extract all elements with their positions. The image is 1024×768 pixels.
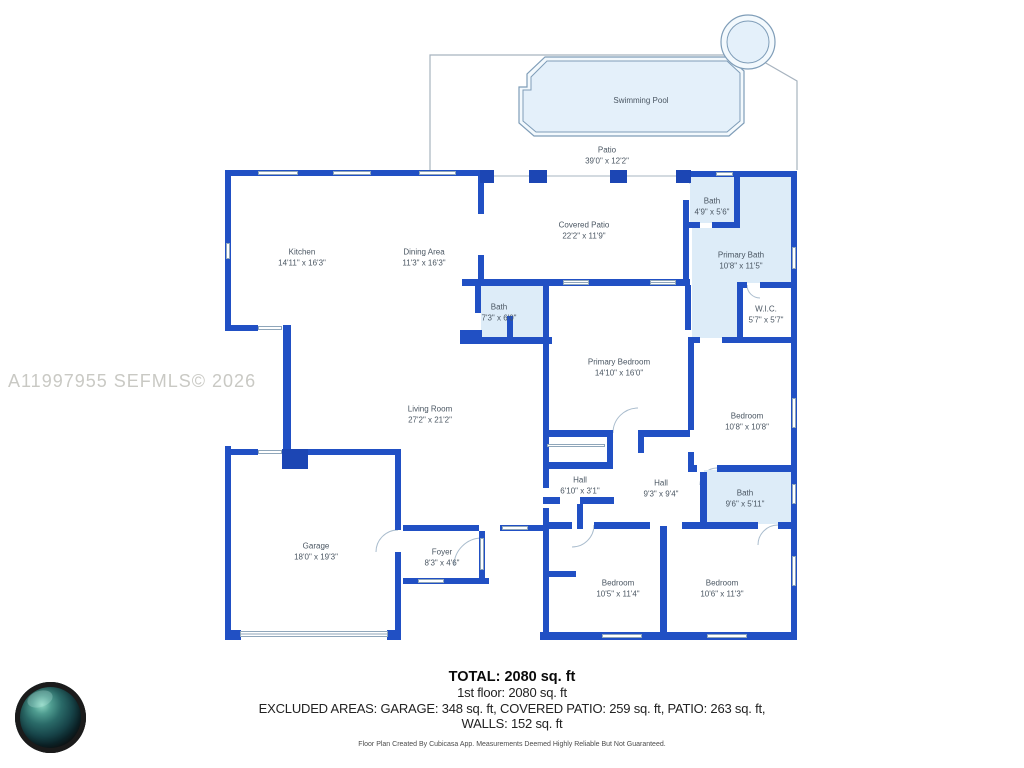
room-label-covered-patio: Covered Patio22'2" x 11'9" — [559, 221, 610, 242]
window — [792, 556, 796, 586]
wall-segment — [737, 282, 743, 343]
wall-segment — [700, 472, 707, 529]
room-dimensions: 7'3" x 6'0" — [482, 313, 517, 324]
room-label-wic: W.I.C.5'7" x 5'7" — [749, 305, 784, 326]
room-dimensions: 10'5" x 11'4" — [596, 589, 639, 600]
window — [547, 444, 605, 447]
window — [480, 538, 484, 570]
room-dimensions: 6'10" x 3'1" — [560, 486, 599, 497]
window — [792, 247, 796, 269]
wall-segment — [478, 255, 484, 285]
window — [258, 450, 282, 454]
window — [563, 280, 589, 285]
room-fill — [692, 228, 740, 338]
wall-segment — [395, 552, 401, 638]
room-label-hall-1: Hall6'10" x 3'1" — [560, 476, 599, 497]
room-name: Garage — [294, 542, 338, 553]
wall-block — [676, 170, 691, 183]
wall-segment — [543, 285, 549, 488]
room-name: Primary Bath — [718, 251, 764, 262]
room-label-bath-middle: Bath7'3" x 6'0" — [482, 303, 517, 324]
area-summary: TOTAL: 2080 sq. ft 1st floor: 2080 sq. f… — [0, 669, 1024, 748]
wall-segment — [717, 465, 797, 472]
room-label-hall-2: Hall9'3" x 9'4" — [644, 479, 679, 500]
wall-segment — [700, 522, 758, 529]
spa-water — [727, 21, 769, 63]
wall-segment — [760, 282, 797, 288]
room-dimensions: 22'2" x 11'9" — [559, 231, 610, 242]
wall-segment — [475, 285, 481, 313]
window — [418, 579, 444, 583]
room-name: Bedroom — [700, 579, 743, 590]
wall-segment — [688, 465, 697, 472]
room-label-swimming-pool: Swimming Pool — [613, 96, 668, 107]
window — [226, 243, 230, 259]
window — [716, 172, 733, 176]
wall-segment — [683, 200, 689, 285]
room-label-bath-top: Bath4'9" x 5'6" — [695, 197, 730, 218]
room-name: Primary Bedroom — [588, 358, 650, 369]
wall-segment — [734, 177, 740, 222]
excluded-walls-text: WALLS: 152 sq. ft — [0, 716, 1024, 732]
wall-segment — [225, 446, 231, 638]
room-name: Bath — [726, 489, 765, 500]
room-label-bedroom-bottom-left: Bedroom10'5" x 11'4" — [596, 579, 639, 600]
wall-segment — [685, 171, 795, 177]
room-label-living-room: Living Room27'2" x 21'2" — [408, 405, 452, 426]
total-area-text: TOTAL: 2080 sq. ft — [0, 669, 1024, 685]
wall-segment — [712, 222, 740, 228]
room-name: Bedroom — [596, 579, 639, 590]
room-name: W.I.C. — [749, 305, 784, 316]
room-dimensions: 14'11" x 16'3" — [278, 258, 326, 269]
room-label-bath-right: Bath9'6" x 5'11" — [726, 489, 765, 510]
window — [258, 171, 298, 175]
wall-segment — [543, 462, 613, 469]
mls-watermark: A11997955 SEFMLS© 2026 — [8, 371, 256, 392]
room-name: Kitchen — [278, 248, 326, 259]
wall-segment — [543, 430, 613, 437]
wall-segment — [548, 571, 576, 577]
room-name: Swimming Pool — [613, 96, 668, 107]
room-label-kitchen: Kitchen14'11" x 16'3" — [278, 248, 326, 269]
floorplan-page: Swimming PoolPatio39'0" x 12'2"Kitchen14… — [0, 0, 1024, 768]
wall-segment — [682, 522, 700, 529]
room-dimensions: 9'3" x 9'4" — [644, 489, 679, 500]
wall-segment — [607, 430, 613, 469]
room-name: Living Room — [408, 405, 452, 416]
room-dimensions: 11'3" x 16'3" — [402, 258, 445, 269]
wall-segment — [545, 522, 572, 529]
window — [258, 326, 282, 330]
room-dimensions: 18'0" x 19'3" — [294, 552, 338, 563]
wall-segment — [638, 430, 690, 437]
room-label-garage: Garage18'0" x 19'3" — [294, 542, 338, 563]
wall-segment — [403, 525, 479, 531]
wall-segment — [594, 522, 650, 529]
excluded-areas-text: EXCLUDED AREAS: GARAGE: 348 sq. ft, COVE… — [0, 701, 1024, 717]
wall-segment — [778, 522, 797, 529]
wall-segment — [688, 343, 694, 430]
wall-segment — [227, 449, 258, 455]
window — [792, 484, 796, 504]
room-dimensions: 9'6" x 5'11" — [726, 499, 765, 510]
wall-block — [529, 170, 547, 183]
room-name: Patio — [585, 146, 629, 157]
floor-area-text: 1st floor: 2080 sq. ft — [0, 685, 1024, 701]
wall-block — [610, 170, 627, 183]
room-dimensions: 5'7" x 5'7" — [749, 315, 784, 326]
room-label-foyer: Foyer8'3" x 4'6" — [425, 548, 460, 569]
brokerage-camera-logo — [15, 682, 86, 753]
wall-segment — [722, 337, 797, 343]
room-name: Hall — [644, 479, 679, 490]
disclaimer-text: Floor Plan Created By Cubicasa App. Meas… — [0, 741, 1024, 748]
wall-segment — [387, 630, 401, 640]
wall-segment — [225, 630, 241, 640]
window — [333, 171, 371, 175]
wall-segment — [543, 497, 560, 504]
wall-segment — [403, 578, 489, 584]
window — [707, 634, 747, 638]
room-name: Bath — [695, 197, 730, 208]
window — [650, 280, 676, 285]
wall-segment — [395, 449, 401, 530]
wall-segment — [540, 632, 797, 640]
room-dimensions: 10'8" x 11'5" — [718, 261, 764, 272]
wall-segment — [685, 285, 691, 330]
room-name: Bath — [482, 303, 517, 314]
room-name: Hall — [560, 476, 599, 487]
room-dimensions: 27'2" x 21'2" — [408, 415, 452, 426]
room-label-primary-bedroom: Primary Bedroom14'10" x 16'0" — [588, 358, 650, 379]
window — [792, 398, 796, 428]
room-dimensions: 4'9" x 5'6" — [695, 207, 730, 218]
room-dimensions: 10'8" x 10'8" — [725, 422, 769, 433]
wall-segment — [688, 222, 700, 228]
room-name: Covered Patio — [559, 221, 610, 232]
wall-segment — [660, 526, 667, 636]
wall-segment — [308, 449, 400, 455]
wall-block — [282, 449, 308, 469]
room-name: Foyer — [425, 548, 460, 559]
room-label-patio: Patio39'0" x 12'2" — [585, 146, 629, 167]
room-name: Bedroom — [725, 412, 769, 423]
room-name: Dining Area — [402, 248, 445, 259]
wall-segment — [460, 337, 552, 344]
room-dimensions: 14'10" x 16'0" — [588, 368, 650, 379]
room-label-bedroom-right: Bedroom10'8" x 10'8" — [725, 412, 769, 433]
wall-segment — [577, 504, 583, 529]
window — [602, 634, 642, 638]
wall-segment — [580, 497, 614, 504]
room-label-dining-area: Dining Area11'3" x 16'3" — [402, 248, 445, 269]
room-label-bedroom-bottom-right: Bedroom10'6" x 11'3" — [700, 579, 743, 600]
window — [502, 526, 528, 530]
room-dimensions: 10'6" x 11'3" — [700, 589, 743, 600]
room-dimensions: 39'0" x 12'2" — [585, 156, 629, 167]
wall-segment — [283, 325, 291, 452]
window — [419, 171, 456, 175]
wall-block — [480, 170, 494, 183]
room-dimensions: 8'3" x 4'6" — [425, 558, 460, 569]
room-label-primary-bath: Primary Bath10'8" x 11'5" — [718, 251, 764, 272]
wall-segment — [225, 325, 258, 331]
window — [240, 631, 388, 637]
wall-segment — [638, 437, 644, 453]
